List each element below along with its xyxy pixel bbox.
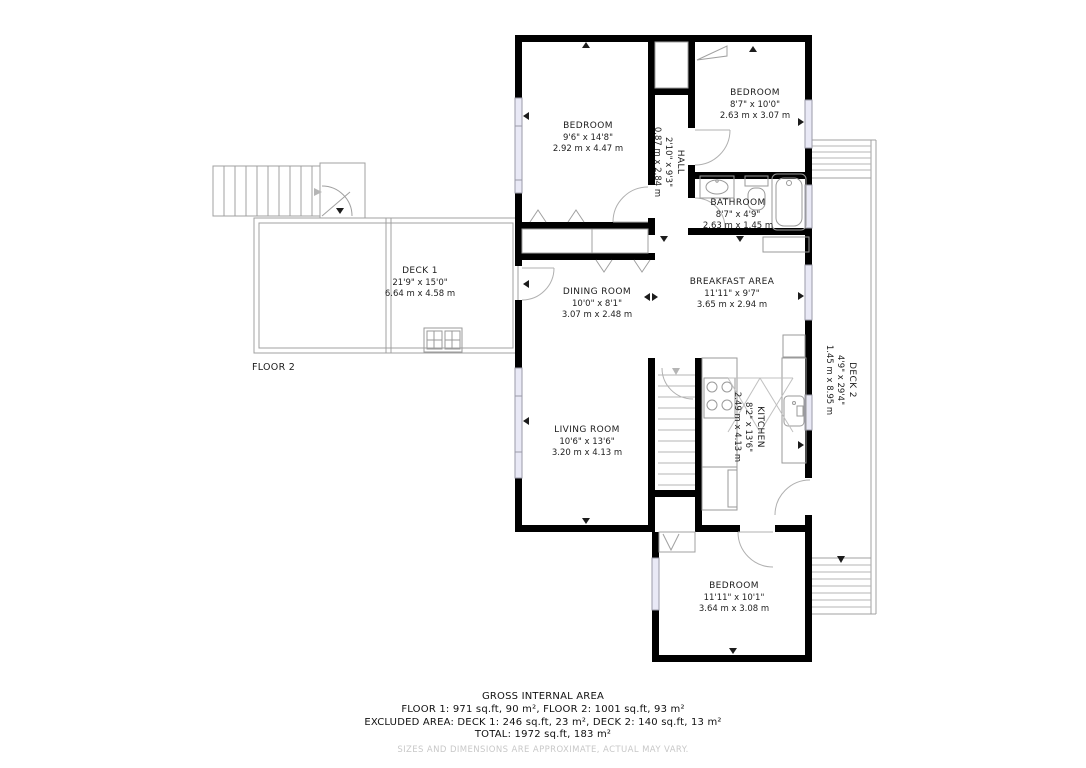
room-dims-metric: 3.07 m x 2.48 m [562,310,632,322]
area-summary-disclaimer: SIZES AND DIMENSIONS ARE APPROXIMATE, AC… [0,745,1086,756]
cabinet [763,237,809,252]
deck2-stairs-top [812,146,871,170]
room-name: BREAKFAST AREA [690,276,775,289]
room-label-breakfast-area: BREAKFAST AREA 11'11" x 9'7" 3.65 m x 2.… [690,276,775,312]
floor-number-label: FLOOR 2 [252,362,295,373]
deck2-stairs-bottom [812,556,871,607]
room-dims-imperial: 8'7" x 10'0" [720,99,790,111]
room-dims-imperial: 2'10" x 9'3" [662,127,674,197]
room-label-deck2: DECK 2 4'9" x 29'4" 1.45 m x 8.95 m [822,345,858,415]
area-summary-floors: FLOOR 1: 971 sq.ft, 90 m², FLOOR 2: 1001… [0,704,1086,717]
room-name: DINING ROOM [562,286,632,299]
room-dims-metric: 6.64 m x 4.58 m [385,289,455,301]
area-summary-title: GROSS INTERNAL AREA [0,691,1086,704]
room-dims-imperial: 10'6" x 13'6" [552,436,622,448]
room-name: LIVING ROOM [552,424,622,437]
room-label-deck1: DECK 1 21'9" x 15'0" 6.64 m x 4.58 m [385,265,455,301]
room-name: BATHROOM [703,197,773,210]
room-label-kitchen: KITCHEN 8'2" x 13'6" 2.49 m x 4.13 m [730,392,766,462]
room-label-bedroom3: BEDROOM 11'11" x 10'1" 3.64 m x 3.08 m [699,580,769,616]
room-dims-imperial: 11'11" x 9'7" [690,288,775,300]
area-summary: GROSS INTERNAL AREA FLOOR 1: 971 sq.ft, … [0,691,1086,756]
room-dims-metric: 2.63 m x 1.45 m [703,221,773,233]
bathtub-icon [772,174,806,230]
room-name: DECK 1 [385,265,455,278]
room-name: HALL [674,127,687,197]
closet-rod-icon [697,46,727,60]
room-dims-metric: 2.92 m x 4.47 m [553,144,623,156]
room-name: BEDROOM [699,580,769,593]
room-name: BEDROOM [553,120,623,133]
room-dims-imperial: 21'9" x 15'0" [385,277,455,289]
room-dims-metric: 0.87 m x 2.84 m [650,127,662,197]
room-dims-imperial: 8'2" x 13'6" [742,392,754,462]
room-label-dining-room: DINING ROOM 10'0" x 8'1" 3.07 m x 2.48 m [562,286,632,322]
room-dims-metric: 3.65 m x 2.94 m [690,300,775,312]
room-label-bedroom2: BEDROOM 8'7" x 10'0" 2.63 m x 3.07 m [720,87,790,123]
area-summary-excluded: EXCLUDED AREA: DECK 1: 246 sq.ft, 23 m²,… [0,717,1086,730]
room-dims-metric: 3.64 m x 3.08 m [699,604,769,616]
room-name: DECK 2 [846,345,859,415]
room-label-living-room: LIVING ROOM 10'6" x 13'6" 3.20 m x 4.13 … [552,424,622,460]
room-name: KITCHEN [754,392,767,462]
cabinet [783,335,805,357]
room-dims-imperial: 10'0" x 8'1" [562,298,632,310]
room-dims-metric: 2.49 m x 4.13 m [730,392,742,462]
room-name: BEDROOM [720,87,790,100]
area-summary-total: TOTAL: 1972 sq.ft, 183 m² [0,729,1086,742]
room-dims-metric: 1.45 m x 8.95 m [822,345,834,415]
room-label-bathroom: BATHROOM 8'7" x 4'9" 2.63 m x 1.45 m [703,197,773,233]
interior-stairs [658,368,695,485]
floor-plan-drawing [0,0,1086,768]
room-dims-metric: 2.63 m x 3.07 m [720,111,790,123]
room-dims-imperial: 11'11" x 10'1" [699,592,769,604]
room-dims-imperial: 9'6" x 14'8" [553,132,623,144]
room-dims-metric: 3.20 m x 4.13 m [552,448,622,460]
floor-plan-page: BEDROOM 9'6" x 14'8" 2.92 m x 4.47 m BED… [0,0,1086,768]
room-label-bedroom1: BEDROOM 9'6" x 14'8" 2.92 m x 4.47 m [553,120,623,156]
room-dims-imperial: 8'7" x 4'9" [703,209,773,221]
room-dims-imperial: 4'9" x 29'4" [834,345,846,415]
sink-vanity-icon [700,176,734,198]
room-label-hall: HALL 2'10" x 9'3" 0.87 m x 2.84 m [650,127,686,197]
